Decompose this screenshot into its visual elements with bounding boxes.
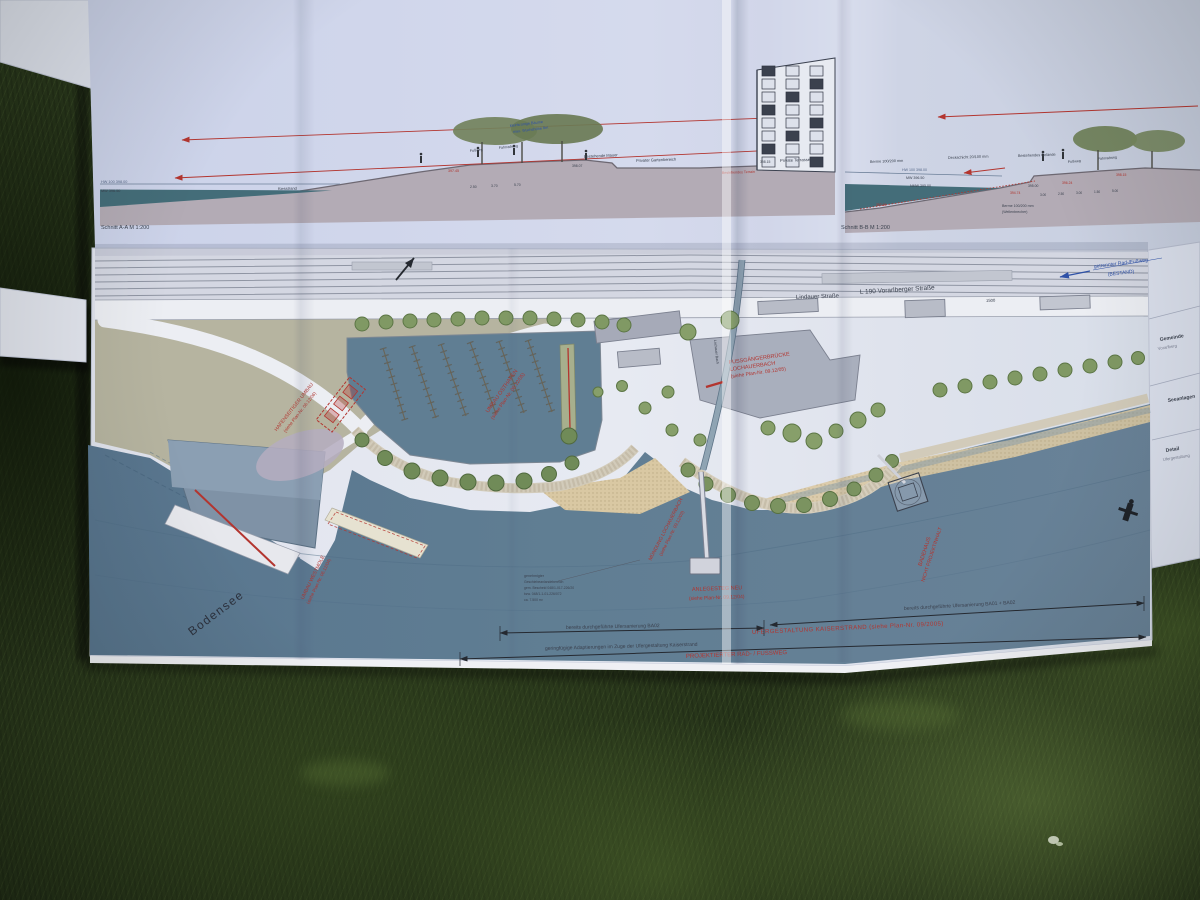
section-a-caption: Schnitt A-A M 1:200 xyxy=(101,225,149,231)
elevation: 395.00 xyxy=(1028,184,1038,188)
elevation: 393.60 xyxy=(876,203,886,207)
jetty-head xyxy=(690,558,720,574)
hw-label: HW 100 398.00 xyxy=(101,180,127,184)
platform xyxy=(352,262,432,270)
elevation: 398.07 xyxy=(572,164,582,168)
dim: 2.50 xyxy=(470,185,477,189)
elevation: 397.45 xyxy=(448,169,459,173)
chainage-label: 1500 xyxy=(986,298,996,303)
site-plan: Lindauer Straße L 190 Vorarlberger Straß… xyxy=(88,252,1162,666)
dim: 3.70 xyxy=(491,184,498,188)
wedge-sheet xyxy=(0,288,86,362)
dim: 3.00 xyxy=(1040,193,1046,197)
hw-label: HW 100 398.00 xyxy=(902,168,927,172)
elevation: 396.24 xyxy=(1062,181,1072,185)
dim: 5.70 xyxy=(514,183,521,187)
dim: 1.50 xyxy=(1094,190,1100,194)
berme-note: (Wellenbrecher) xyxy=(1002,210,1028,214)
nmw-label: NMW 395.00 xyxy=(910,184,931,188)
berme-note: Berme 100/200 mm xyxy=(1002,204,1034,208)
photo-of-plan-on-grass: Gemeinde Vorarlberg Seeanlagen Detail Uf… xyxy=(0,0,1200,900)
dim: 2.50 xyxy=(1058,192,1064,196)
svg-text:bzw. 048/1-1-01-226/072: bzw. 048/1-1-01-226/072 xyxy=(524,592,562,596)
elevation: 398.15 xyxy=(760,160,770,164)
dim: 3.00 xyxy=(1076,191,1082,195)
tree-canopy xyxy=(1073,126,1137,152)
building-section xyxy=(757,58,835,172)
elevation: 394.74 xyxy=(1010,191,1020,195)
svg-text:ca. 7.500 m²: ca. 7.500 m² xyxy=(524,598,544,602)
svg-text:Geschiebeanlandebereich: Geschiebeanlandebereich xyxy=(524,580,564,584)
mw-label: MW 396.50 xyxy=(906,176,924,180)
tree-canopy xyxy=(1131,130,1185,152)
svg-text:gem. Bescheid 048/1-017-226/20: gem. Bescheid 048/1-017-226/20 xyxy=(524,586,574,590)
dim: 5.00 xyxy=(1112,189,1118,193)
mw-label: MW 396.50 xyxy=(101,189,120,193)
plan-drawing: Gemeinde Vorarlberg Seeanlagen Detail Uf… xyxy=(0,0,1200,900)
svg-text:genehmigter: genehmigter xyxy=(524,574,545,578)
elevation: 398.15 xyxy=(1116,173,1126,177)
